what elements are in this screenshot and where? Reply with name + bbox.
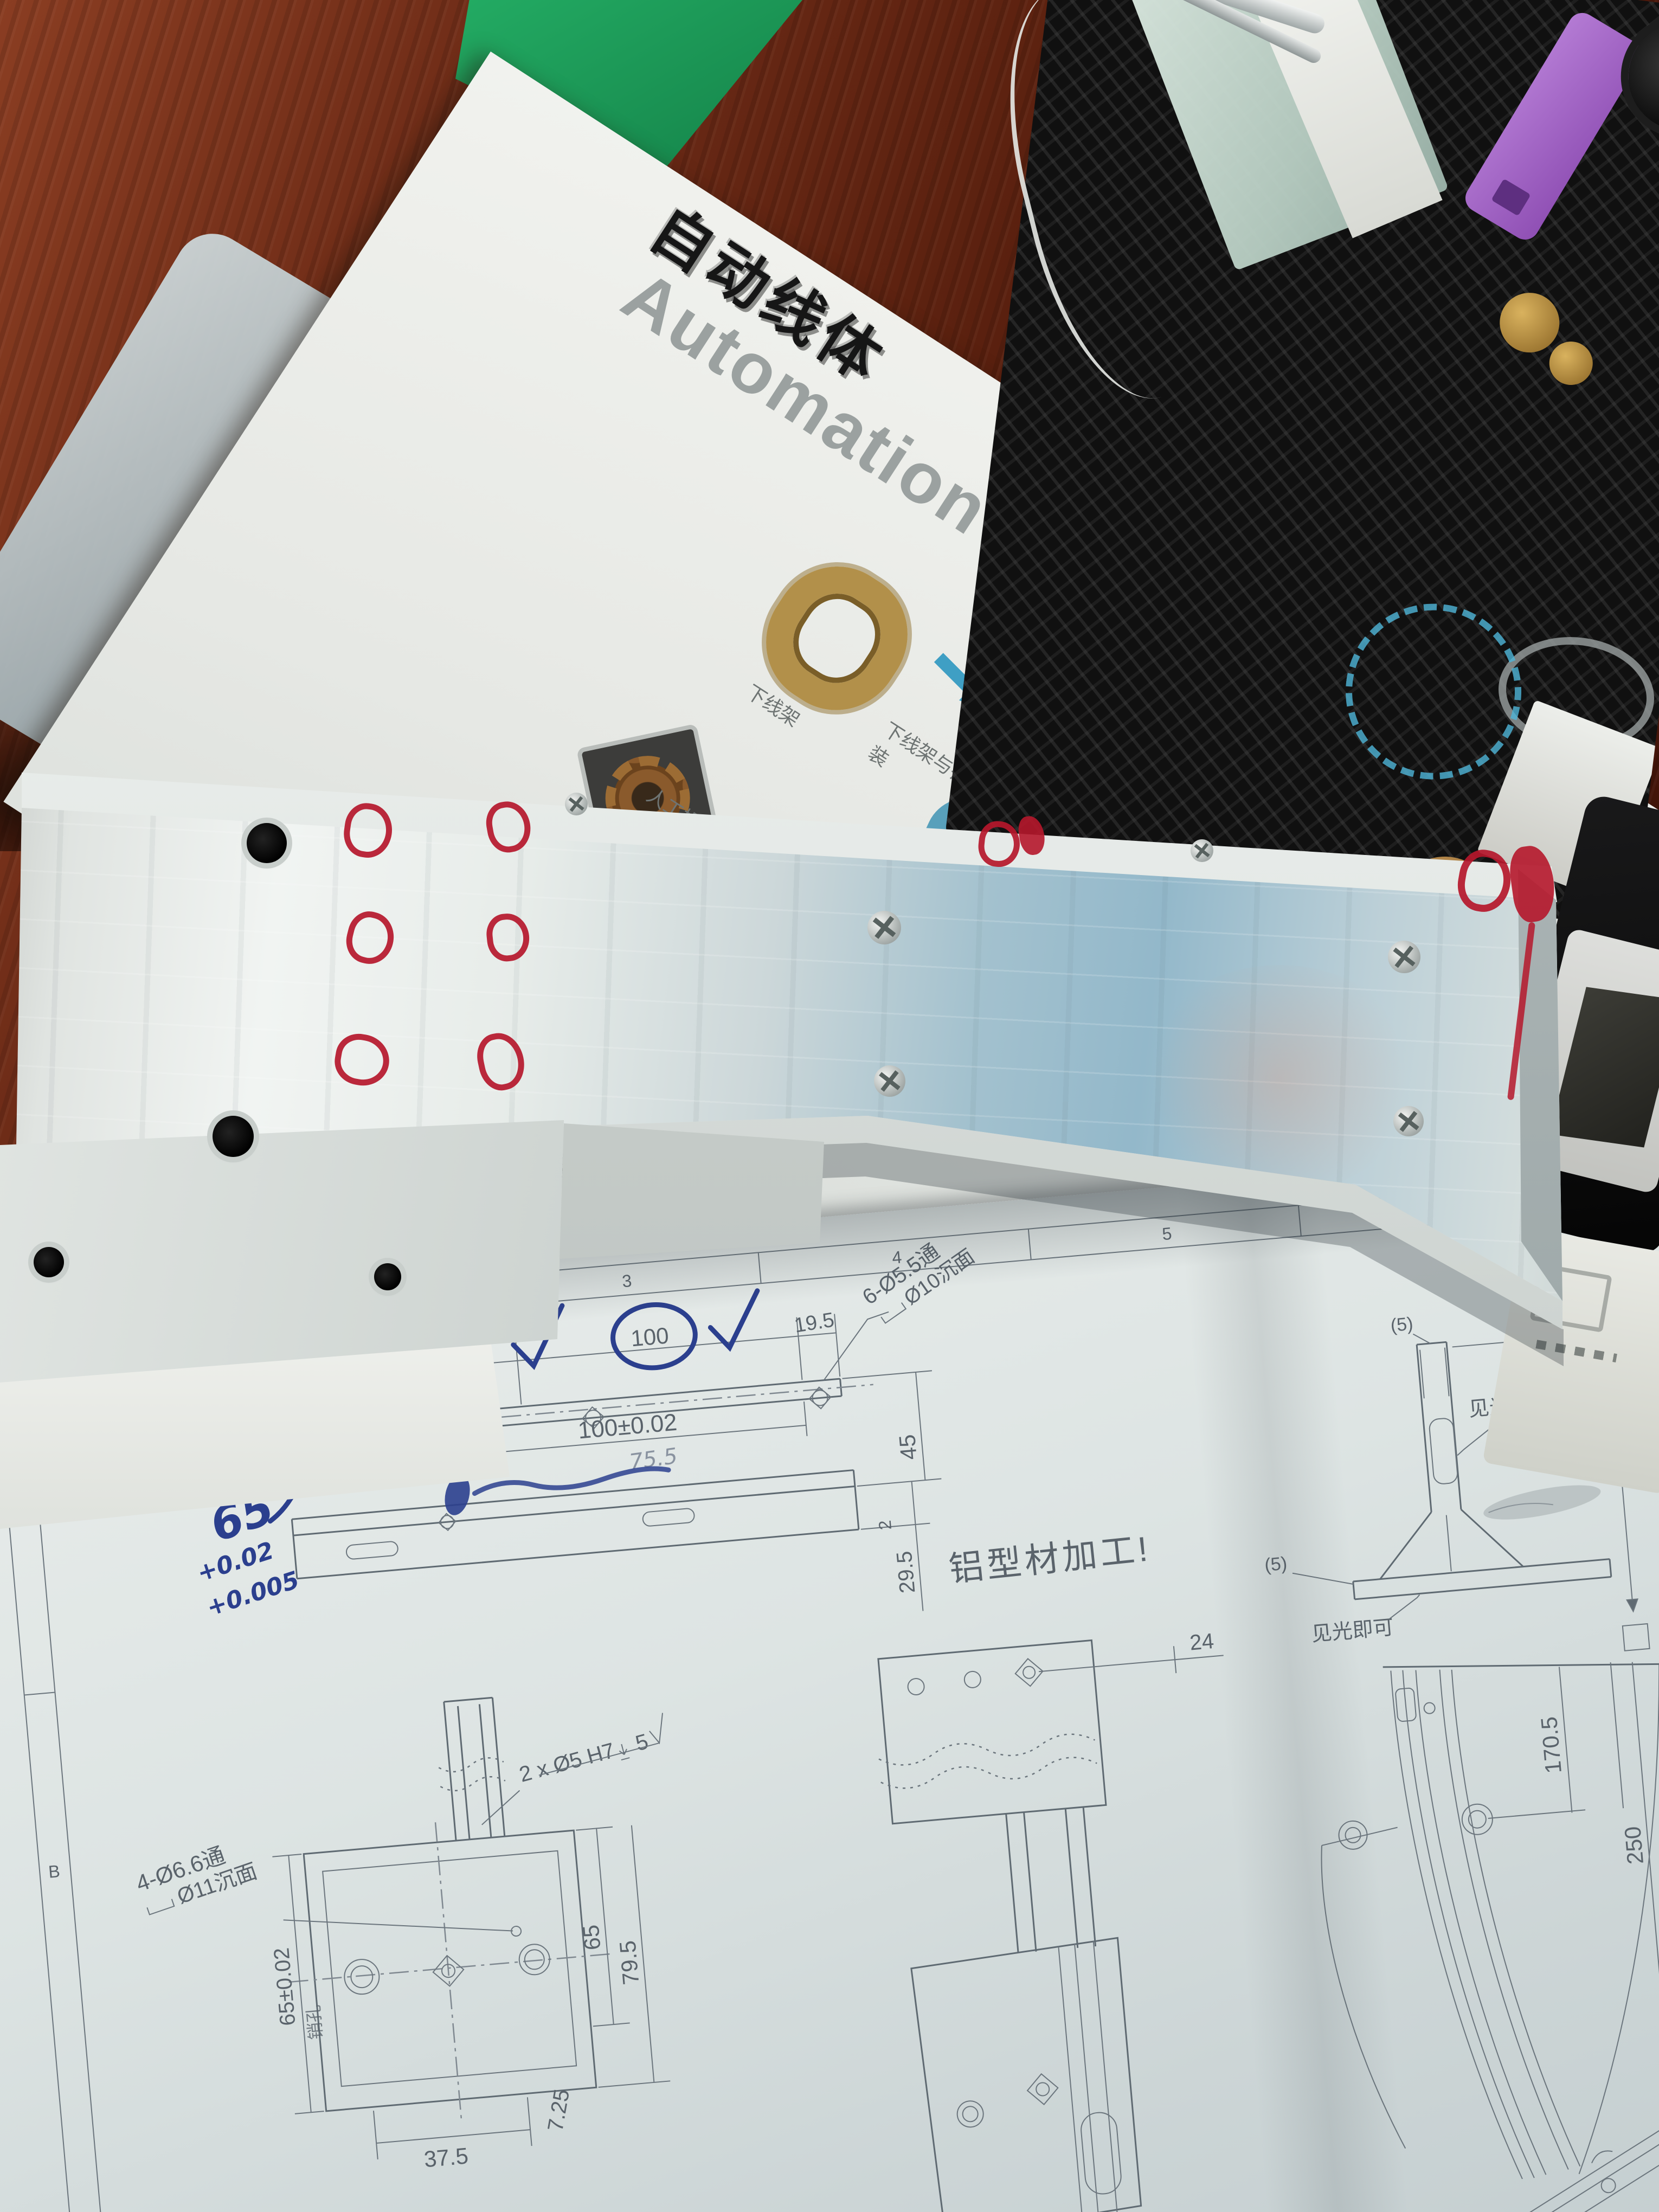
dim-170-5: 170.5 <box>1536 1715 1566 1774</box>
dim-24: 24 <box>1189 1629 1215 1655</box>
dim-79-5: 79.5 <box>614 1939 644 1986</box>
hole-callout-2: 4-Ø6.6通 Ø11沉面 <box>133 1834 260 1920</box>
pin-callout: 2 x Ø5 H7 5 <box>514 1713 672 1787</box>
engineering-drawing-sheet: 1 2 3 4 5 6 7 A B <box>0 1124 1659 2212</box>
front-view: 4-Ø6.6通 Ø11沉面 2 x Ø5 H7 5 65±0.02 <box>120 1682 707 2195</box>
svg-text:5: 5 <box>633 1729 651 1756</box>
device-display <box>1549 987 1659 1147</box>
dim-100: 100 <box>630 1322 670 1351</box>
lower-plate <box>910 1938 1142 2212</box>
desk-photo: 自动线体 Automation body 下线架 铁芯 下线架与铁芯组 装 人工 <box>0 0 1659 2212</box>
dim-65-tol: 65±0.02 <box>269 1947 300 2027</box>
dim-65: 65 <box>578 1924 606 1951</box>
flow-arrow-left-icon <box>1018 881 1103 961</box>
ref-5a: (5) <box>1390 1314 1414 1336</box>
usb-port <box>1491 178 1531 216</box>
dim-37-5: 37.5 <box>423 2143 470 2172</box>
pin-label: 销孔 <box>304 2004 326 2041</box>
dim-2: 2 <box>875 1520 895 1531</box>
copper-coil-toroid <box>1393 857 1496 960</box>
machining-note: 铝型材加工! <box>947 1529 1153 1589</box>
dim-45: 45 <box>894 1433 922 1461</box>
dim-7-25: 7.25 <box>543 2087 574 2133</box>
dim-29-5: 29.5 <box>892 1550 920 1594</box>
side-view: 24 <box>870 1629 1272 2212</box>
grid-letter: B <box>48 1861 61 1882</box>
dim-250: 250 <box>1619 1825 1648 1866</box>
dim-100-tol: 100±0.02 <box>577 1409 678 1444</box>
instrument-marking <box>1535 1340 1617 1362</box>
instrument-marking <box>1529 1263 1612 1333</box>
svg-text:2 x Ø5 H7: 2 x Ø5 H7 <box>517 1739 617 1787</box>
